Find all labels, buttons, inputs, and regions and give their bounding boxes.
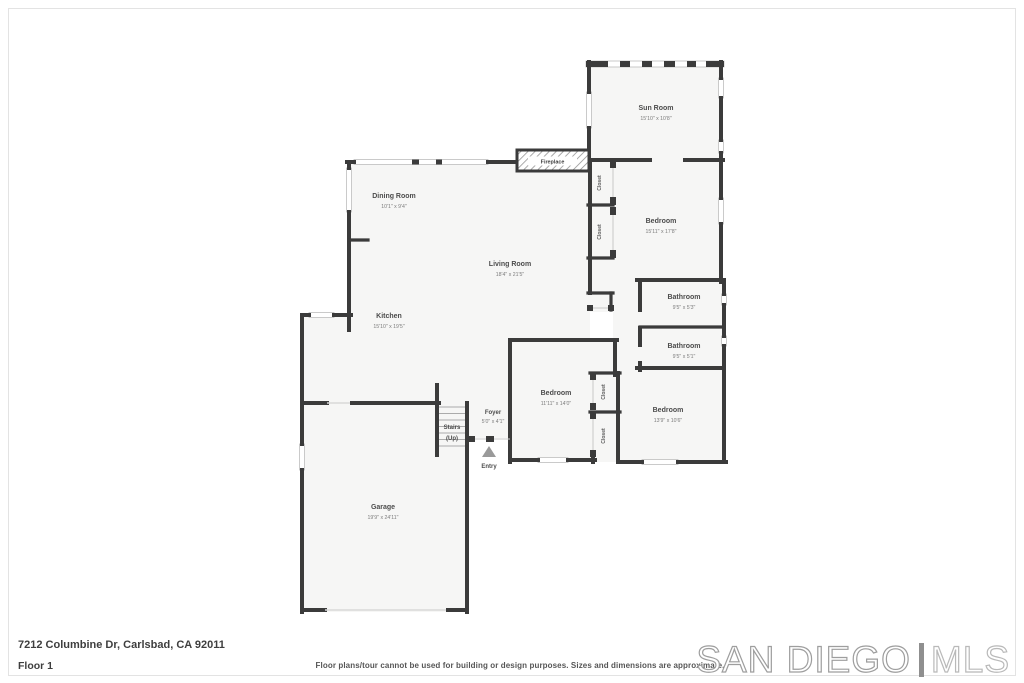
kitchen-dims: 15'10" x 19'5" xyxy=(373,324,404,330)
stairs-label: Stairs xyxy=(444,425,461,431)
floorplan-drawing: Fireplace Sun Room 15'10" x 10'8" Dining… xyxy=(0,0,1024,683)
bathroom-1-dims: 9'5" x 5'3" xyxy=(673,305,696,311)
closet-3-label: Closet xyxy=(601,384,607,400)
living-room-label: Living Room xyxy=(489,261,531,268)
bedroom-3-dims: 13'9" x 10'6" xyxy=(654,418,683,424)
fireplace: Fireplace xyxy=(517,150,589,171)
logo-divider-bar xyxy=(919,643,924,677)
dining-room-label: Dining Room xyxy=(372,193,416,200)
garage-label: Garage xyxy=(371,504,395,511)
entry-arrow-icon xyxy=(482,446,496,457)
sandiego-mls-logo: SAN DIEGO MLS xyxy=(696,641,1010,678)
bedroom-3-label: Bedroom xyxy=(653,407,684,414)
sun-room-dims: 15'10" x 10'8" xyxy=(640,116,671,122)
logo-text-primary: SAN DIEGO xyxy=(696,641,911,678)
fireplace-label: Fireplace xyxy=(541,160,565,166)
bathroom-2-dims: 9'5" x 5'1" xyxy=(673,354,696,360)
bedroom-2-label: Bedroom xyxy=(541,390,572,397)
bedroom-2-dims: 11'11" x 14'0" xyxy=(541,401,572,407)
property-address: 7212 Columbine Dr, Carlsbad, CA 92011 xyxy=(18,639,225,651)
floor-number: Floor 1 xyxy=(18,660,53,672)
closet-4-label: Closet xyxy=(601,428,607,444)
entry-label: Entry xyxy=(481,464,497,470)
foyer-label: Foyer xyxy=(485,410,502,416)
bathroom-1-label: Bathroom xyxy=(667,294,700,301)
closet-1-label: Closet xyxy=(597,175,603,191)
disclaimer-text: Floor plans/tour cannot be used for buil… xyxy=(316,661,725,670)
kitchen-label: Kitchen xyxy=(376,313,402,320)
living-room-dims: 18'4" x 21'5" xyxy=(496,272,525,278)
bathroom-2-label: Bathroom xyxy=(667,343,700,350)
garage-dims: 19'9" x 24'11" xyxy=(368,515,399,521)
bedroom-1-dims: 15'11" x 17'8" xyxy=(646,229,677,235)
logo-text-secondary: MLS xyxy=(931,641,1010,678)
closet-2-label: Closet xyxy=(597,224,603,240)
dining-room-dims: 10'1" x 9'4" xyxy=(381,204,407,210)
floor-areas xyxy=(302,62,724,612)
bedroom-1-label: Bedroom xyxy=(646,218,677,225)
sun-room-label: Sun Room xyxy=(639,105,674,112)
floorplan-page: Fireplace Sun Room 15'10" x 10'8" Dining… xyxy=(0,0,1024,683)
foyer-dims: 5'0" x 4'1" xyxy=(482,419,505,425)
stairs-up-label: (Up) xyxy=(446,436,458,442)
